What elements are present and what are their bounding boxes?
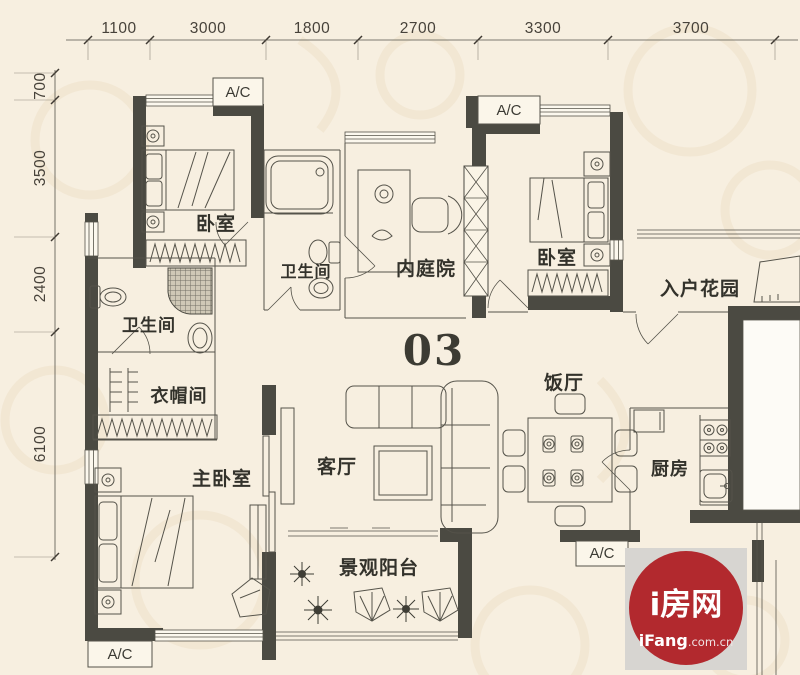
garden-planter bbox=[754, 256, 800, 302]
ifang-logo: i房网 iFang.com.cn bbox=[625, 548, 747, 670]
room-label-bathroom-middle: 卫生间 bbox=[280, 262, 331, 281]
ac-box-bedroom1: A/C bbox=[213, 78, 263, 106]
dim-left-3: 2400 bbox=[32, 266, 49, 302]
dim-top-3: 1800 bbox=[294, 20, 330, 37]
logo-brand: i房网 bbox=[650, 587, 723, 623]
stove bbox=[700, 420, 730, 456]
floorplan-canvas: 1100 3000 1800 2700 3300 3700 700 3500 2… bbox=[0, 0, 800, 675]
dim-top-5: 3300 bbox=[525, 20, 561, 37]
room-label-entry-garden: 入户花园 bbox=[660, 277, 740, 300]
bathtub bbox=[266, 156, 333, 214]
window bbox=[146, 95, 213, 106]
courtyard-desk bbox=[358, 170, 462, 272]
master-sliding-door bbox=[263, 436, 275, 552]
dim-top-6: 3700 bbox=[673, 20, 709, 37]
ac-label-1: A/C bbox=[225, 84, 250, 101]
cloakroom-hooks bbox=[110, 368, 138, 412]
dim-top-1: 1100 bbox=[101, 20, 136, 37]
coffee-table bbox=[374, 446, 432, 500]
room-label-cloakroom: 衣帽间 bbox=[151, 385, 208, 406]
wardrobe-bedroom2 bbox=[528, 270, 608, 296]
shower-stall bbox=[168, 268, 212, 314]
room-label-living-room: 客厅 bbox=[317, 455, 357, 478]
window bbox=[85, 450, 98, 484]
dim-left-2: 3500 bbox=[32, 150, 49, 186]
ac-box-kitchen: A/C bbox=[576, 541, 628, 566]
logo-domain-suffix: .com.cn bbox=[688, 635, 733, 649]
room-label-master-bedroom: 主卧室 bbox=[192, 467, 252, 490]
balcony-railing bbox=[276, 528, 458, 640]
room-label-courtyard: 内庭院 bbox=[396, 257, 456, 280]
sink-middle bbox=[309, 278, 333, 298]
window bbox=[155, 630, 263, 641]
room-label-bedroom2: 卧室 bbox=[537, 246, 577, 269]
toilet-middle bbox=[309, 240, 340, 264]
window bbox=[345, 132, 435, 143]
ac-label-2: A/C bbox=[496, 102, 521, 119]
dim-left-4: 6100 bbox=[32, 426, 49, 462]
room-label-balcony: 景观阳台 bbox=[339, 556, 419, 579]
tv-cabinet bbox=[281, 408, 294, 504]
wardrobe-bedroom1 bbox=[146, 240, 246, 266]
dimension-line-top: 1100 3000 1800 2700 3300 3700 bbox=[66, 20, 798, 60]
adjacent-unit-room bbox=[743, 320, 800, 675]
cloakroom-wardrobe bbox=[93, 415, 217, 439]
ac-box-bedroom2: A/C bbox=[478, 96, 540, 124]
dim-top-4: 2700 bbox=[400, 20, 436, 37]
window bbox=[540, 105, 610, 116]
entry-garden-railing bbox=[637, 230, 800, 238]
ac-box-master: A/C bbox=[88, 641, 152, 667]
kitchen-counter bbox=[634, 410, 728, 505]
logo-domain-main: iFang bbox=[639, 631, 688, 650]
sink-left bbox=[188, 323, 212, 353]
dim-left-1: 700 bbox=[32, 72, 49, 99]
kitchen-sink bbox=[700, 470, 732, 502]
room-label-bedroom1: 卧室 bbox=[196, 212, 236, 235]
window bbox=[85, 222, 98, 256]
structural-column bbox=[464, 166, 488, 296]
room-label-kitchen: 厨房 bbox=[651, 458, 689, 479]
dim-top-2: 3000 bbox=[190, 20, 226, 37]
window bbox=[610, 240, 623, 260]
room-label-bathroom-left: 卫生间 bbox=[122, 315, 176, 335]
unit-number: 03 bbox=[403, 326, 465, 375]
room-label-dining-room: 饭厅 bbox=[543, 371, 584, 394]
ac-label-3: A/C bbox=[107, 646, 132, 663]
sofa-set bbox=[346, 381, 498, 533]
ac-label-4: A/C bbox=[589, 545, 614, 562]
